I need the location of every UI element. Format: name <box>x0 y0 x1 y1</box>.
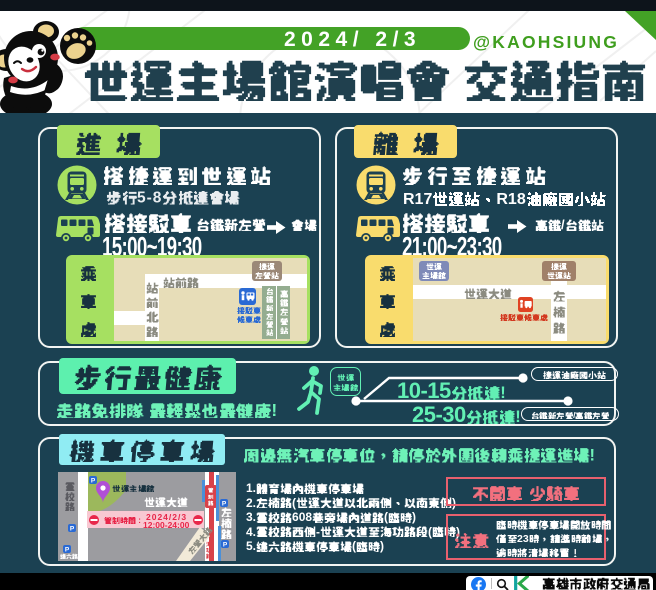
svg-text:P: P <box>70 525 75 532</box>
svg-text:P: P <box>223 541 228 548</box>
svg-text:P: P <box>91 477 96 484</box>
svg-text:P: P <box>65 546 70 553</box>
svg-text:P: P <box>222 500 227 507</box>
